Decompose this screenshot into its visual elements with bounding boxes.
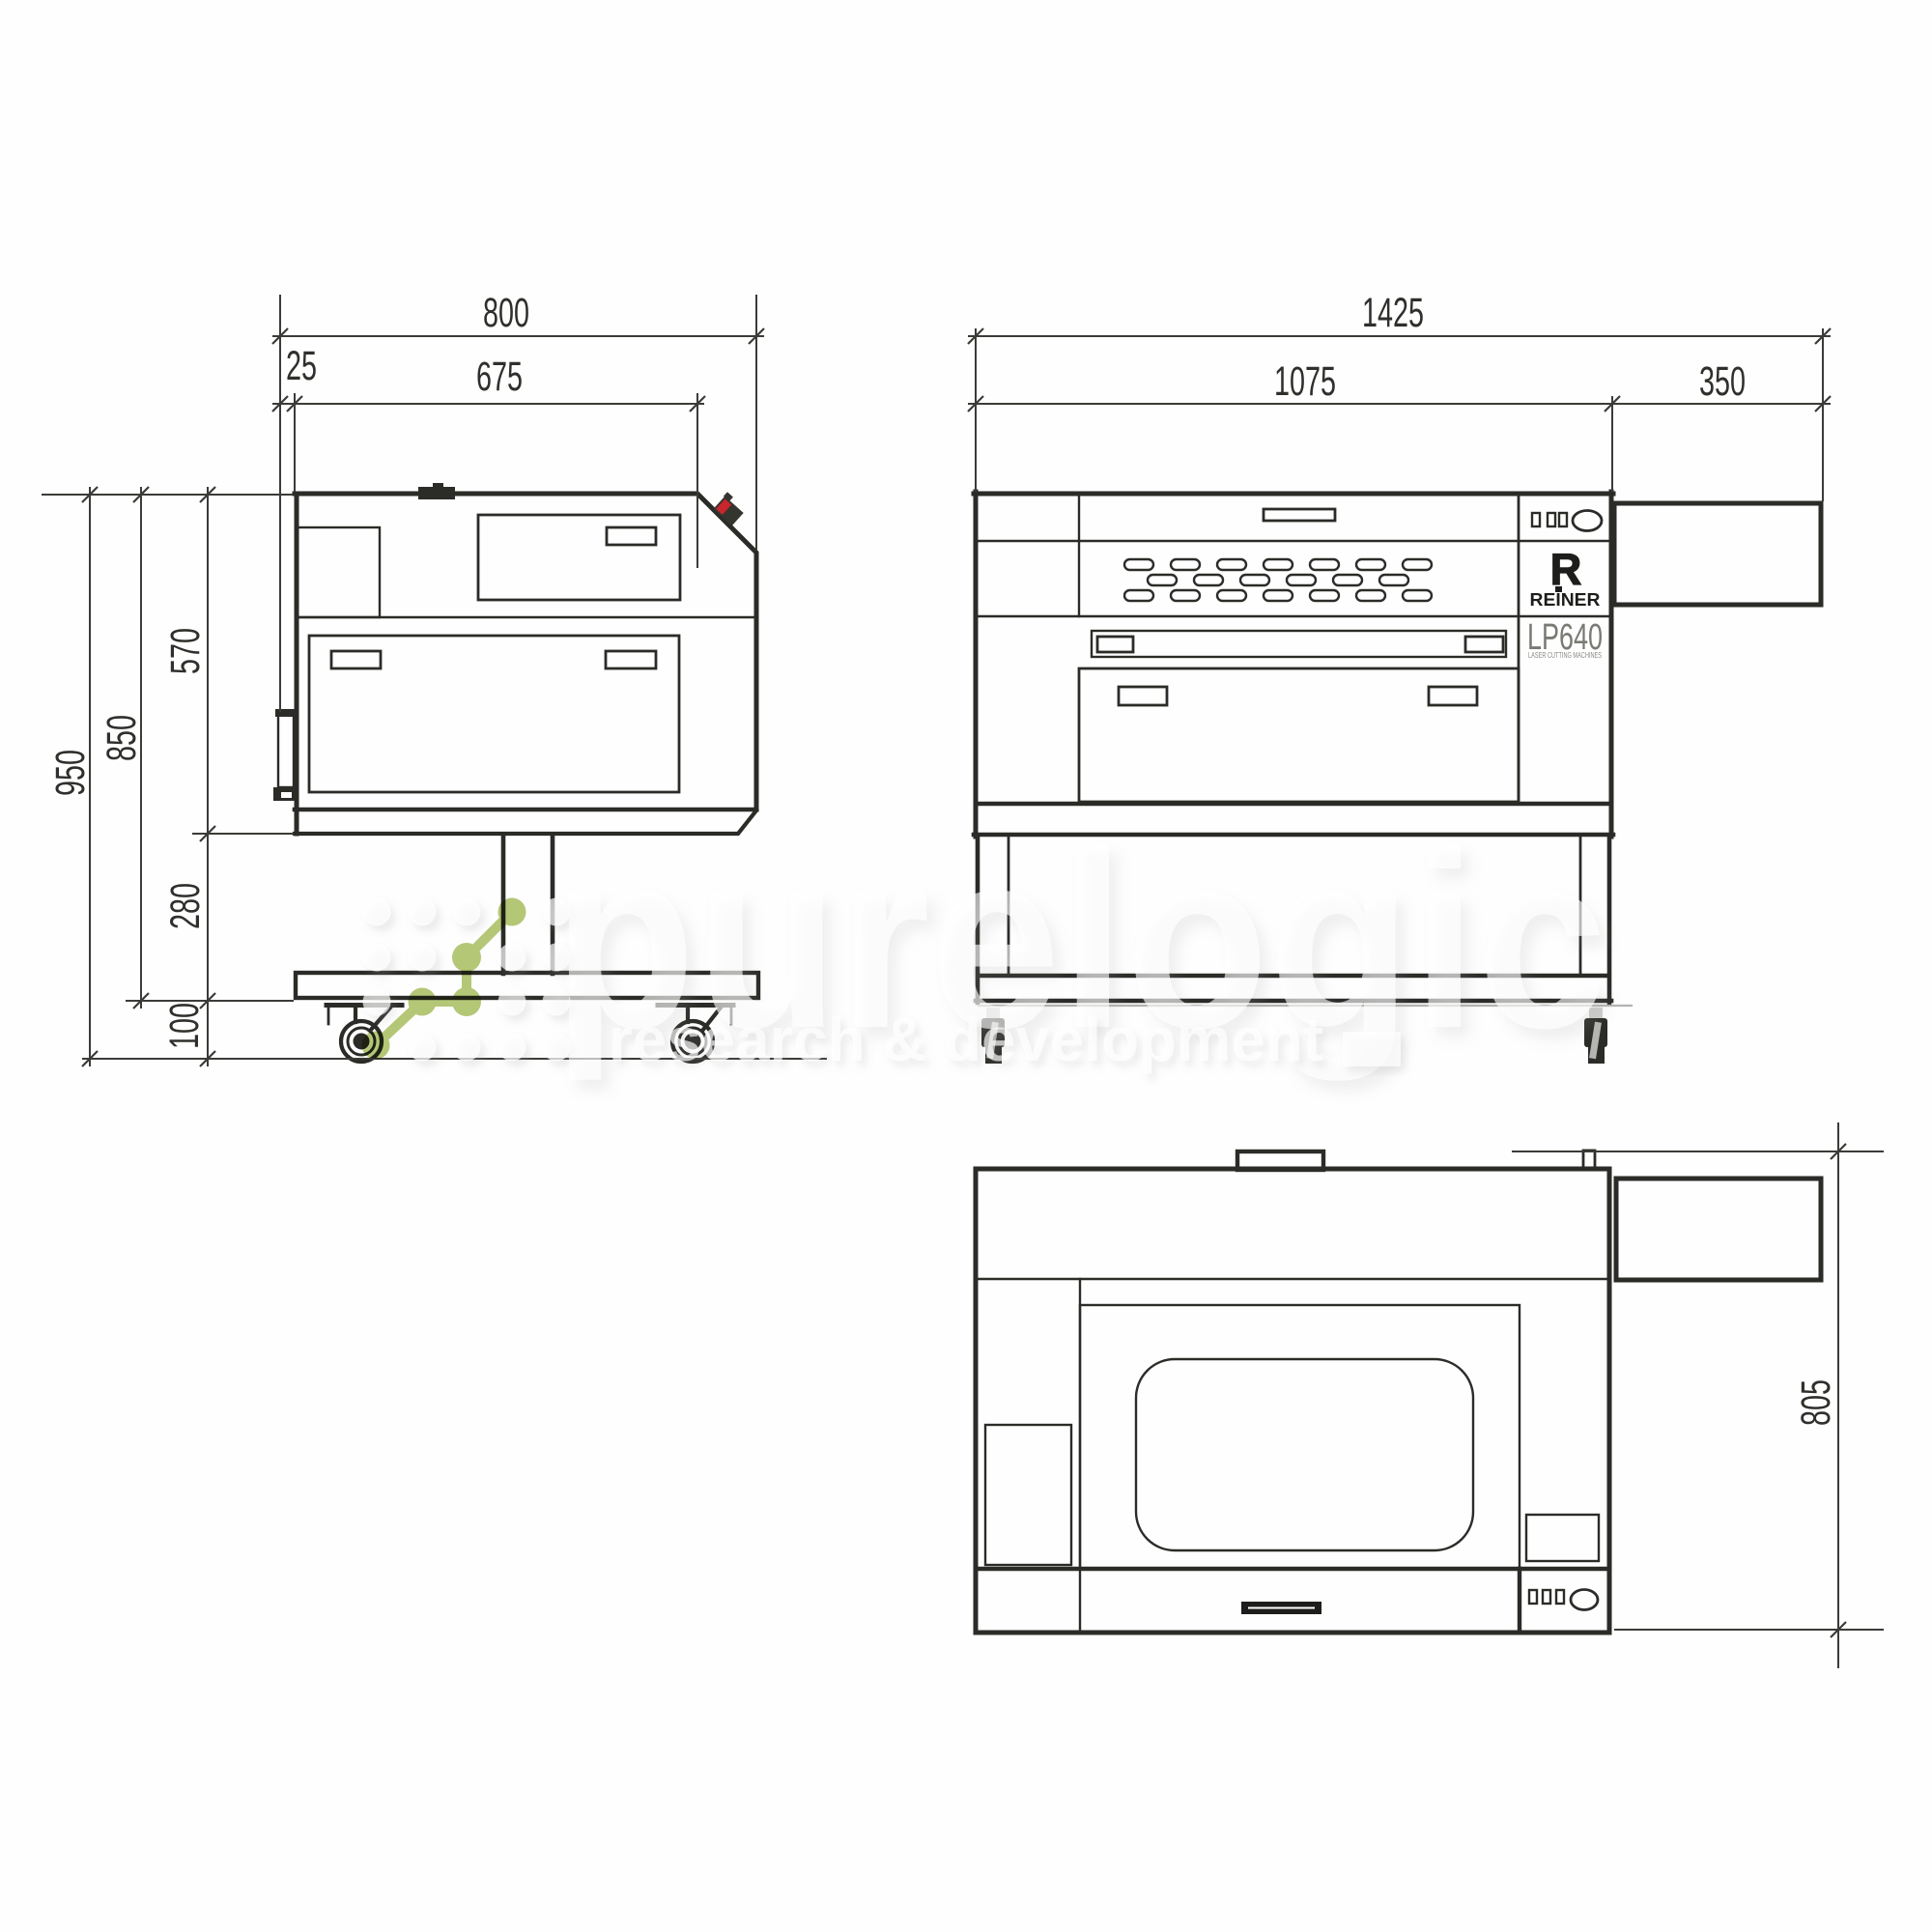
svg-text:100: 100 [161, 1003, 208, 1049]
svg-text:research & development: research & development [609, 1005, 1323, 1074]
svg-text:R: R [1550, 545, 1582, 594]
svg-text:1075: 1075 [1274, 358, 1336, 405]
svg-text:25: 25 [286, 343, 317, 389]
svg-text:1425: 1425 [1362, 290, 1424, 336]
svg-text:LASER CUTTING MACHINES: LASER CUTTING MACHINES [1528, 650, 1602, 660]
svg-text:350: 350 [1699, 358, 1746, 405]
svg-text:570: 570 [162, 628, 209, 674]
svg-text:805: 805 [1793, 1379, 1839, 1426]
svg-text:675: 675 [476, 354, 523, 400]
svg-text:280: 280 [162, 883, 209, 929]
svg-text:950: 950 [47, 750, 94, 796]
svg-text:850: 850 [99, 715, 145, 761]
svg-text:REINER: REINER [1530, 590, 1601, 610]
svg-text:800: 800 [483, 290, 529, 336]
